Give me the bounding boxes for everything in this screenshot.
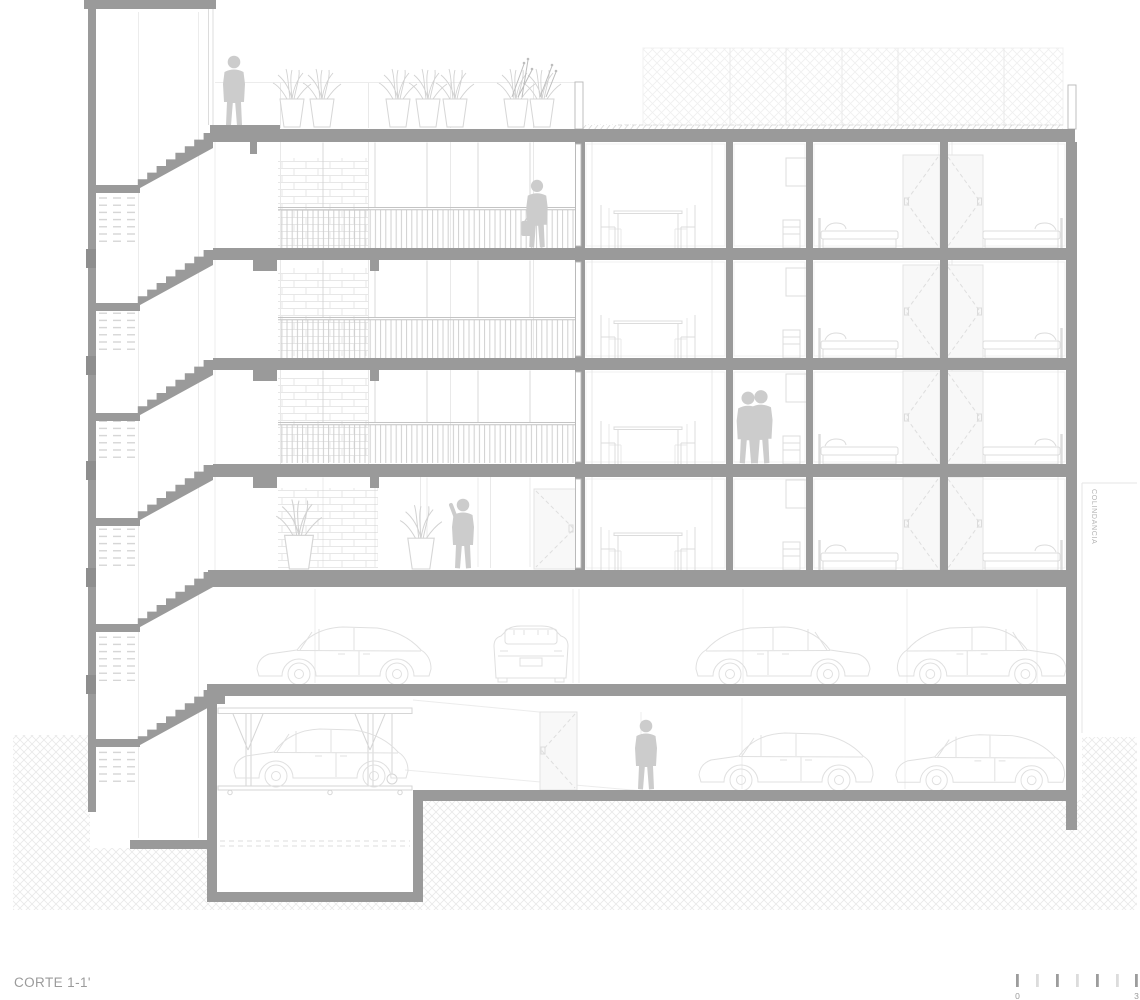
basement-door [540,712,577,790]
couple-in-room [737,390,773,463]
partition-wall-2 [806,142,813,570]
person-on-ground-floor [451,499,474,569]
person-in-basement [635,720,657,790]
architectural-section-page: COLINDANCIA CORTE 1-1' 0 3 [0,0,1140,1000]
floor-4-furniture [601,155,1062,248]
car-on-lift [234,729,408,787]
room-block [586,142,1065,570]
scale-end-label: 3 [1134,991,1139,1000]
parking-level-1 [257,589,1066,685]
section-drawing: COLINDANCIA CORTE 1-1' 0 3 [0,0,1140,1000]
stair-tower-bottom-slab [130,840,217,849]
floor-2-furniture [601,371,1062,464]
floor-3-furniture [601,265,1062,358]
trellis-screen [618,48,1066,125]
walkway-zone [215,142,577,570]
ground-floor-door [534,489,577,569]
car-side-parking-right-2 [897,627,1066,685]
boundary-annotation: COLINDANCIA [1082,483,1137,733]
roof-railing-post-right [1068,85,1076,129]
roof-gravel-ticks [578,125,1063,130]
parking-slab [207,684,1075,696]
car-side-parking [257,627,431,685]
person-on-roof [223,56,245,126]
scale-start-label: 0 [1015,991,1020,1000]
right-exterior-wall [1066,142,1077,830]
roof-planter-cluster-2 [379,69,474,127]
roof-planter-cluster-3 [497,58,561,127]
floor-1-furniture [601,477,1062,570]
partition-wall-1 [726,142,733,570]
wall-rung-strips [576,144,582,568]
partition-wall-3 [940,142,948,570]
roof-railing-post-left [575,82,583,129]
scale-bar: 0 3 [1015,974,1139,1000]
stair-bulkhead-roof-slab [84,0,216,9]
pit-floor [207,892,423,902]
pit-right-wall [413,790,423,902]
car-side-parking-right-1 [696,627,870,685]
car-side-basement-2 [896,735,1065,791]
basement-slab [415,790,1075,801]
ground-floor-slab [208,570,1075,587]
pit-left-wall [207,696,217,902]
car-side-basement-1 [699,733,873,791]
boundary-label: COLINDANCIA [1090,489,1097,545]
roof-slab [213,129,1075,142]
section-title: CORTE 1-1' [14,975,91,990]
car-rear-parking [494,626,568,682]
roof-planter-cluster-1 [273,69,341,127]
stair-flights [138,133,213,746]
